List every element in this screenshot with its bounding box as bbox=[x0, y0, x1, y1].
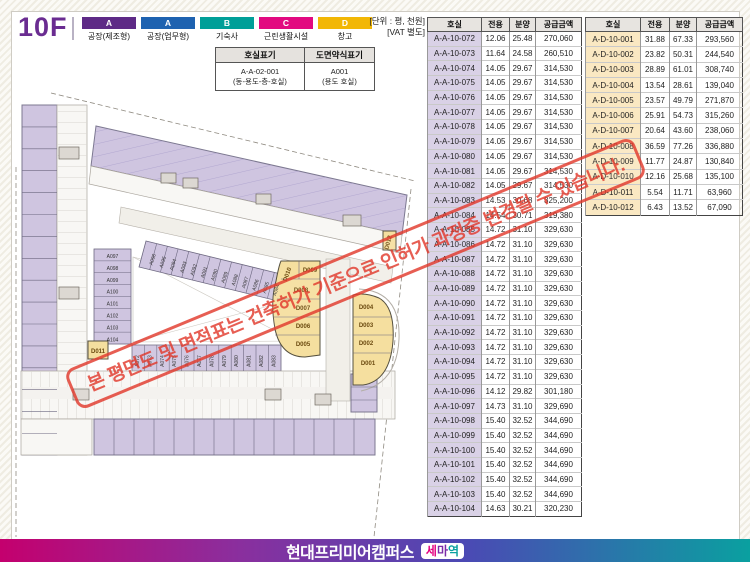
room-id-cell: A-A-10-082 bbox=[428, 178, 482, 193]
column-header: 전용 bbox=[641, 18, 670, 32]
value-cell: 11.71 bbox=[670, 184, 697, 199]
value-cell: 31.10 bbox=[510, 340, 536, 355]
notation-header-room: 호실표기 bbox=[216, 48, 305, 63]
value-cell: 31.10 bbox=[510, 296, 536, 311]
room-id-cell: A-A-10-094 bbox=[428, 355, 482, 370]
room-label: D005 bbox=[296, 342, 311, 348]
value-cell: 6.43 bbox=[641, 200, 670, 215]
column-header: 전용 bbox=[482, 18, 510, 32]
value-cell: 14.72 bbox=[482, 267, 510, 282]
value-cell: 135,100 bbox=[697, 169, 743, 184]
value-cell: 13.52 bbox=[670, 200, 697, 215]
room-label: A079 bbox=[222, 355, 228, 367]
room-id-cell: A-A-10-086 bbox=[428, 237, 482, 252]
room-label: D006 bbox=[296, 324, 311, 330]
room-id-cell: A-A-10-097 bbox=[428, 399, 482, 414]
value-cell: 77.26 bbox=[670, 139, 697, 154]
value-cell: 29.67 bbox=[510, 76, 536, 91]
value-cell: 31.10 bbox=[510, 281, 536, 296]
room-label: D011 bbox=[91, 349, 106, 355]
value-cell: 14.72 bbox=[482, 252, 510, 267]
value-cell: 14.72 bbox=[482, 325, 510, 340]
value-cell: 11.64 bbox=[482, 46, 510, 61]
value-cell: 329,630 bbox=[536, 281, 582, 296]
room-label: A074 bbox=[160, 355, 166, 367]
value-cell: 30.68 bbox=[510, 193, 536, 208]
value-cell: 20.64 bbox=[641, 123, 670, 138]
table-row: A-A-10-10115.4032.52344,690 bbox=[428, 457, 582, 472]
table-row: A-D-10-00131.8867.33293,560 bbox=[586, 32, 743, 47]
room-label: A082 bbox=[259, 355, 265, 367]
value-cell: 14.05 bbox=[482, 149, 510, 164]
table-row: A-A-10-09915.4032.52344,690 bbox=[428, 428, 582, 443]
value-cell: 28.61 bbox=[670, 77, 697, 92]
room-id-cell: A-A-10-073 bbox=[428, 46, 482, 61]
table-row: A-A-10-08114.0529.67314,530 bbox=[428, 164, 582, 179]
value-cell: 329,630 bbox=[536, 252, 582, 267]
table-row: A-A-10-07814.0529.67314,530 bbox=[428, 120, 582, 135]
table-row: A-A-10-09114.7231.10329,630 bbox=[428, 311, 582, 326]
room-label: D004 bbox=[359, 305, 374, 311]
table-row: A-D-10-00413.5428.61139,040 bbox=[586, 77, 743, 92]
value-cell: 14.72 bbox=[482, 296, 510, 311]
value-cell: 301,180 bbox=[536, 384, 582, 399]
room-label: A103 bbox=[107, 325, 119, 331]
table-row: A-A-10-07914.0529.67314,530 bbox=[428, 134, 582, 149]
station-badge: 세마역 bbox=[421, 543, 464, 559]
value-cell: 28.89 bbox=[641, 62, 670, 77]
room-label: A098 bbox=[107, 266, 119, 272]
value-cell: 14.12 bbox=[482, 384, 510, 399]
room-id-cell: A-A-10-103 bbox=[428, 487, 482, 502]
footer-bar: 현대프리미어캠퍼스 세마역 bbox=[0, 539, 750, 562]
brand-title: 현대프리미어캠퍼스 bbox=[286, 539, 414, 563]
room-id-cell: A-A-10-075 bbox=[428, 76, 482, 91]
table-row: A-A-10-09514.7231.10329,630 bbox=[428, 369, 582, 384]
value-cell: 314,530 bbox=[536, 76, 582, 91]
table-row: A-D-10-0126.4313.5267,090 bbox=[586, 200, 743, 215]
value-cell: 31.10 bbox=[510, 399, 536, 414]
value-cell: 329,630 bbox=[536, 369, 582, 384]
room-id-cell: A-A-10-099 bbox=[428, 428, 482, 443]
notation-cell-room: A-A-02-001 (동-용도-층-호실) bbox=[216, 63, 305, 91]
table-row: A-A-10-09214.7231.10329,630 bbox=[428, 325, 582, 340]
room-id-cell: A-A-10-102 bbox=[428, 472, 482, 487]
column-header: 호실 bbox=[428, 18, 482, 32]
value-cell: 314,530 bbox=[536, 120, 582, 135]
value-cell: 14.54 bbox=[482, 208, 510, 223]
table-row: A-A-10-09714.7331.10329,690 bbox=[428, 399, 582, 414]
room-id-cell: A-A-10-072 bbox=[428, 32, 482, 47]
value-cell: 329,630 bbox=[536, 311, 582, 326]
room-id-cell: A-A-10-096 bbox=[428, 384, 482, 399]
value-cell: 25.91 bbox=[641, 108, 670, 123]
table-row: A-A-10-09614.1229.82301,180 bbox=[428, 384, 582, 399]
value-cell: 15.40 bbox=[482, 472, 510, 487]
table-row: A-A-10-08714.7231.10329,630 bbox=[428, 252, 582, 267]
station-badge-char: 세 bbox=[426, 544, 437, 558]
value-cell: 31.10 bbox=[510, 355, 536, 370]
room-id-cell: A-D-10-003 bbox=[586, 62, 641, 77]
value-cell: 15.40 bbox=[482, 428, 510, 443]
room-label: A102 bbox=[107, 314, 119, 320]
station-badge-char: 마 bbox=[437, 544, 448, 558]
value-cell: 344,690 bbox=[536, 428, 582, 443]
value-cell: 14.05 bbox=[482, 61, 510, 76]
room-id-cell: A-A-10-079 bbox=[428, 134, 482, 149]
room-id-cell: A-A-10-080 bbox=[428, 149, 482, 164]
table-row: A-A-10-07614.0529.67314,530 bbox=[428, 90, 582, 105]
room-id-cell: A-A-10-088 bbox=[428, 267, 482, 282]
value-cell: 336,880 bbox=[697, 139, 743, 154]
room-table-d: 호실전용분양공급금액A-D-10-00131.8867.33293,560A-D… bbox=[585, 17, 743, 216]
room-id-cell: A-A-10-083 bbox=[428, 193, 482, 208]
table-row: A-A-10-08214.0529.67314,530 bbox=[428, 178, 582, 193]
value-cell: 31.10 bbox=[510, 267, 536, 282]
value-cell: 29.67 bbox=[510, 105, 536, 120]
value-cell: 29.67 bbox=[510, 61, 536, 76]
value-cell: 13.54 bbox=[641, 77, 670, 92]
room-label: A073 bbox=[147, 355, 153, 367]
room-id-cell: A-A-10-089 bbox=[428, 281, 482, 296]
table-row: A-D-10-00223.8250.31244,540 bbox=[586, 47, 743, 62]
value-cell: 329,630 bbox=[536, 222, 582, 237]
value-cell: 293,560 bbox=[697, 32, 743, 47]
table-row: A-A-10-08314.5330.68325,200 bbox=[428, 193, 582, 208]
room-id-cell: A-A-10-092 bbox=[428, 325, 482, 340]
value-cell: 271,870 bbox=[697, 93, 743, 108]
value-cell: 14.05 bbox=[482, 164, 510, 179]
room-id-cell: A-D-10-007 bbox=[586, 123, 641, 138]
value-cell: 344,690 bbox=[536, 487, 582, 502]
room-id-cell: A-D-10-001 bbox=[586, 32, 641, 47]
value-cell: 29.67 bbox=[510, 134, 536, 149]
value-cell: 329,630 bbox=[536, 355, 582, 370]
table-row: A-A-10-10215.4032.52344,690 bbox=[428, 472, 582, 487]
value-cell: 139,040 bbox=[697, 77, 743, 92]
table-row: A-A-10-09314.7231.10329,630 bbox=[428, 340, 582, 355]
table-row: A-A-10-09014.7231.10329,630 bbox=[428, 296, 582, 311]
table-row: A-A-10-10315.4032.52344,690 bbox=[428, 487, 582, 502]
room-label: D008 bbox=[294, 288, 309, 294]
value-cell: 314,530 bbox=[536, 105, 582, 120]
table-row: A-A-10-08514.7231.10329,630 bbox=[428, 222, 582, 237]
value-cell: 36.59 bbox=[641, 139, 670, 154]
value-cell: 31.10 bbox=[510, 222, 536, 237]
room-id-cell: A-A-10-081 bbox=[428, 164, 482, 179]
value-cell: 61.01 bbox=[670, 62, 697, 77]
table-row: A-A-10-07311.6424.58260,510 bbox=[428, 46, 582, 61]
table-row: A-A-10-08814.7231.10329,630 bbox=[428, 267, 582, 282]
room-id-cell: A-A-10-085 bbox=[428, 222, 482, 237]
value-cell: 29.67 bbox=[510, 164, 536, 179]
table-row: A-A-10-07414.0529.67314,530 bbox=[428, 61, 582, 76]
room-id-cell: A-D-10-004 bbox=[586, 77, 641, 92]
value-cell: 23.57 bbox=[641, 93, 670, 108]
room-id-cell: A-A-10-087 bbox=[428, 252, 482, 267]
value-cell: 14.73 bbox=[482, 399, 510, 414]
value-cell: 14.72 bbox=[482, 369, 510, 384]
value-cell: 54.73 bbox=[670, 108, 697, 123]
value-cell: 14.05 bbox=[482, 120, 510, 135]
value-cell: 14.72 bbox=[482, 340, 510, 355]
room-label: A077 bbox=[197, 355, 203, 367]
value-cell: 14.72 bbox=[482, 311, 510, 326]
room-id-cell: A-A-10-078 bbox=[428, 120, 482, 135]
room-id-cell: A-A-10-104 bbox=[428, 502, 482, 517]
table-row: A-A-10-10414.6330.21320,230 bbox=[428, 502, 582, 517]
floor-label: 10F bbox=[18, 12, 68, 43]
header-divider bbox=[72, 17, 74, 40]
legend-item-factory-mfg: A 공장(제조형) bbox=[82, 17, 136, 42]
room-id-cell: A-D-10-011 bbox=[586, 184, 641, 199]
table-row: A-A-10-08614.7231.10329,630 bbox=[428, 237, 582, 252]
value-cell: 244,540 bbox=[697, 47, 743, 62]
value-cell: 14.63 bbox=[482, 502, 510, 517]
floor-plan: A097A098A099A100A101A102A103A104A096A095… bbox=[13, 88, 423, 540]
table-row: A-D-10-01012.1625.68135,100 bbox=[586, 169, 743, 184]
value-cell: 329,630 bbox=[536, 296, 582, 311]
value-cell: 24.58 bbox=[510, 46, 536, 61]
value-cell: 260,510 bbox=[536, 46, 582, 61]
room-id-cell: A-D-10-008 bbox=[586, 139, 641, 154]
room-id-cell: A-D-10-002 bbox=[586, 47, 641, 62]
notation-header-abbrev: 도면약식표기 bbox=[305, 48, 375, 63]
value-cell: 319,380 bbox=[536, 208, 582, 223]
column-header: 공급금액 bbox=[536, 18, 582, 32]
value-cell: 320,230 bbox=[536, 502, 582, 517]
room-id-cell: A-D-10-010 bbox=[586, 169, 641, 184]
value-cell: 14.72 bbox=[482, 355, 510, 370]
value-cell: 32.52 bbox=[510, 487, 536, 502]
room-label: A075 bbox=[172, 355, 178, 367]
unit-note-line1: [단위 : 평, 천원] bbox=[345, 16, 425, 27]
table-row: A-A-10-10015.4032.52344,690 bbox=[428, 443, 582, 458]
value-cell: 32.52 bbox=[510, 428, 536, 443]
value-cell: 67,090 bbox=[697, 200, 743, 215]
value-cell: 23.82 bbox=[641, 47, 670, 62]
room-label: A100 bbox=[107, 290, 119, 296]
value-cell: 329,690 bbox=[536, 399, 582, 414]
legend-code-chip: C bbox=[259, 17, 313, 29]
room-label: D002 bbox=[359, 341, 374, 347]
value-cell: 12.16 bbox=[641, 169, 670, 184]
table-row: A-A-10-07514.0529.67314,530 bbox=[428, 76, 582, 91]
room-label: A104 bbox=[107, 337, 119, 343]
value-cell: 32.52 bbox=[510, 413, 536, 428]
unit-note-line2: [VAT 별도] bbox=[345, 27, 425, 38]
room-id-cell: A-A-10-077 bbox=[428, 105, 482, 120]
value-cell: 31.10 bbox=[510, 252, 536, 267]
table-row: A-D-10-00911.7724.87130,840 bbox=[586, 154, 743, 169]
table-row: A-D-10-00836.5977.26336,880 bbox=[586, 139, 743, 154]
room-label: A083 bbox=[271, 355, 277, 367]
value-cell: 329,630 bbox=[536, 325, 582, 340]
value-cell: 314,530 bbox=[536, 134, 582, 149]
value-cell: 12.06 bbox=[482, 32, 510, 47]
value-cell: 14.05 bbox=[482, 134, 510, 149]
station-badge-char: 역 bbox=[448, 544, 459, 558]
value-cell: 30.21 bbox=[510, 502, 536, 517]
value-cell: 14.53 bbox=[482, 193, 510, 208]
value-cell: 270,060 bbox=[536, 32, 582, 47]
legend-code-chip: A bbox=[82, 17, 136, 29]
room-id-cell: A-D-10-006 bbox=[586, 108, 641, 123]
value-cell: 14.05 bbox=[482, 178, 510, 193]
value-cell: 29.82 bbox=[510, 384, 536, 399]
value-cell: 11.77 bbox=[641, 154, 670, 169]
table-row: A-D-10-00720.6443.60238,060 bbox=[586, 123, 743, 138]
value-cell: 14.72 bbox=[482, 237, 510, 252]
value-cell: 24.87 bbox=[670, 154, 697, 169]
room-label: A097 bbox=[107, 254, 119, 260]
value-cell: 329,630 bbox=[536, 267, 582, 282]
room-id-cell: A-D-10-005 bbox=[586, 93, 641, 108]
value-cell: 314,530 bbox=[536, 90, 582, 105]
notation-cell-abbrev: A001 (용도 호실) bbox=[305, 63, 375, 91]
value-cell: 15.40 bbox=[482, 413, 510, 428]
column-header: 공급금액 bbox=[697, 18, 743, 32]
room-id-cell: A-D-10-012 bbox=[586, 200, 641, 215]
value-cell: 15.40 bbox=[482, 443, 510, 458]
room-label: A081 bbox=[247, 355, 253, 367]
value-cell: 29.67 bbox=[510, 178, 536, 193]
table-row: A-D-10-00523.5749.79271,870 bbox=[586, 93, 743, 108]
value-cell: 325,200 bbox=[536, 193, 582, 208]
table-row: A-A-10-07212.0625.48270,060 bbox=[428, 32, 582, 47]
value-cell: 130,840 bbox=[697, 154, 743, 169]
room-id-cell: A-A-10-100 bbox=[428, 443, 482, 458]
table-row: A-A-10-09815.4032.52344,690 bbox=[428, 413, 582, 428]
room-id-cell: A-A-10-093 bbox=[428, 340, 482, 355]
value-cell: 14.05 bbox=[482, 76, 510, 91]
value-cell: 31.10 bbox=[510, 237, 536, 252]
room-table-a: 호실전용분양공급금액A-A-10-07212.0625.48270,060A-A… bbox=[427, 17, 582, 517]
room-label: D001 bbox=[361, 361, 376, 367]
value-cell: 31.88 bbox=[641, 32, 670, 47]
room-label: A076 bbox=[185, 355, 191, 367]
table-row: A-A-10-08414.5430.71319,380 bbox=[428, 208, 582, 223]
value-cell: 63,960 bbox=[697, 184, 743, 199]
value-cell: 31.10 bbox=[510, 325, 536, 340]
table-row: A-D-10-00625.9154.73315,260 bbox=[586, 108, 743, 123]
room-id-cell: A-A-10-090 bbox=[428, 296, 482, 311]
unit-note: [단위 : 평, 천원] [VAT 별도] bbox=[345, 16, 425, 38]
value-cell: 29.67 bbox=[510, 90, 536, 105]
value-cell: 43.60 bbox=[670, 123, 697, 138]
table-row: A-D-10-00328.8961.01308,740 bbox=[586, 62, 743, 77]
room-id-cell: A-A-10-098 bbox=[428, 413, 482, 428]
value-cell: 49.79 bbox=[670, 93, 697, 108]
value-cell: 314,530 bbox=[536, 61, 582, 76]
value-cell: 14.05 bbox=[482, 90, 510, 105]
legend-item-factory-office: A 공장(업무형) bbox=[141, 17, 195, 42]
value-cell: 238,060 bbox=[697, 123, 743, 138]
legend-item-label: 공장(업무형) bbox=[141, 31, 195, 42]
legend-item-dormitory: B 기숙사 bbox=[200, 17, 254, 42]
table-row: A-A-10-08014.0529.67314,530 bbox=[428, 149, 582, 164]
value-cell: 67.33 bbox=[670, 32, 697, 47]
table-row: A-A-10-07714.0529.67314,530 bbox=[428, 105, 582, 120]
room-label: A101 bbox=[107, 302, 119, 308]
value-cell: 29.67 bbox=[510, 120, 536, 135]
room-label: D009 bbox=[303, 268, 318, 274]
legend-code-chip: A bbox=[141, 17, 195, 29]
room-id-cell: A-A-10-091 bbox=[428, 311, 482, 326]
value-cell: 14.72 bbox=[482, 281, 510, 296]
value-cell: 31.10 bbox=[510, 369, 536, 384]
value-cell: 32.52 bbox=[510, 472, 536, 487]
value-cell: 30.71 bbox=[510, 208, 536, 223]
legend-item-label: 근린생활시설 bbox=[259, 31, 313, 42]
room-id-cell: A-A-10-074 bbox=[428, 61, 482, 76]
value-cell: 344,690 bbox=[536, 443, 582, 458]
value-cell: 15.40 bbox=[482, 487, 510, 502]
value-cell: 314,530 bbox=[536, 178, 582, 193]
room-id-cell: A-A-10-095 bbox=[428, 369, 482, 384]
value-cell: 344,690 bbox=[536, 457, 582, 472]
value-cell: 32.52 bbox=[510, 443, 536, 458]
value-cell: 329,630 bbox=[536, 340, 582, 355]
value-cell: 308,740 bbox=[697, 62, 743, 77]
room-label: A078 bbox=[209, 355, 215, 367]
table-row: A-A-10-09414.7231.10329,630 bbox=[428, 355, 582, 370]
room-label: A099 bbox=[107, 278, 119, 284]
value-cell: 315,260 bbox=[697, 108, 743, 123]
legend-item-label: 공장(제조형) bbox=[82, 31, 136, 42]
room-id-cell: A-A-10-084 bbox=[428, 208, 482, 223]
value-cell: 50.31 bbox=[670, 47, 697, 62]
column-header: 호실 bbox=[586, 18, 641, 32]
legend-item-neighborhood: C 근린생활시설 bbox=[259, 17, 313, 42]
value-cell: 314,530 bbox=[536, 149, 582, 164]
table-row: A-A-10-08914.7231.10329,630 bbox=[428, 281, 582, 296]
value-cell: 15.40 bbox=[482, 457, 510, 472]
room-id-cell: A-A-10-101 bbox=[428, 457, 482, 472]
room-label: A072 bbox=[135, 355, 141, 367]
room-id-cell: A-A-10-076 bbox=[428, 90, 482, 105]
value-cell: 14.72 bbox=[482, 222, 510, 237]
room-label: D007 bbox=[296, 306, 311, 312]
value-cell: 14.05 bbox=[482, 105, 510, 120]
value-cell: 32.52 bbox=[510, 457, 536, 472]
legend-item-label: 기숙사 bbox=[200, 31, 254, 42]
value-cell: 5.54 bbox=[641, 184, 670, 199]
value-cell: 31.10 bbox=[510, 311, 536, 326]
value-cell: 25.68 bbox=[670, 169, 697, 184]
legend-code-chip: B bbox=[200, 17, 254, 29]
table-row: A-D-10-0115.5411.7163,960 bbox=[586, 184, 743, 199]
page: 10F A 공장(제조형) A 공장(업무형) B 기숙사 C 근린생활시설 D… bbox=[0, 0, 750, 562]
column-header: 분양 bbox=[670, 18, 697, 32]
value-cell: 329,630 bbox=[536, 237, 582, 252]
column-header: 분양 bbox=[510, 18, 536, 32]
room-label: D003 bbox=[359, 323, 374, 329]
room-label: A080 bbox=[234, 355, 240, 367]
room-id-cell: A-D-10-009 bbox=[586, 154, 641, 169]
legend: A 공장(제조형) A 공장(업무형) B 기숙사 C 근린생활시설 D 창고 bbox=[82, 17, 372, 42]
value-cell: 344,690 bbox=[536, 472, 582, 487]
value-cell: 29.67 bbox=[510, 149, 536, 164]
value-cell: 314,530 bbox=[536, 164, 582, 179]
value-cell: 344,690 bbox=[536, 413, 582, 428]
value-cell: 25.48 bbox=[510, 32, 536, 47]
notation-table: 호실표기 도면약식표기 A-A-02-001 (동-용도-층-호실) A001 … bbox=[215, 47, 375, 91]
